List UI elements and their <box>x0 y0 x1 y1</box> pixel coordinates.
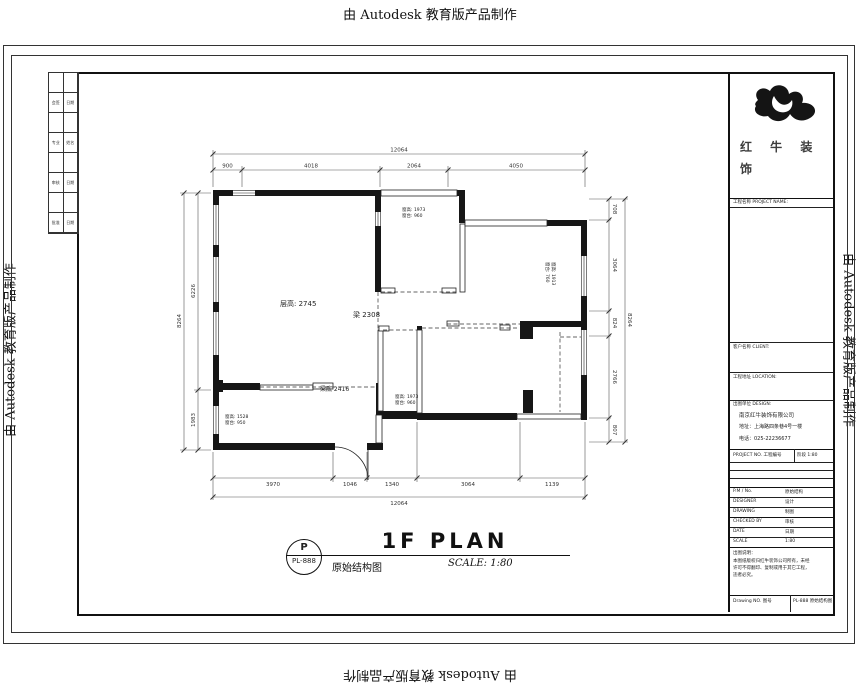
dim-right-seg: 807 <box>611 425 617 436</box>
dim-bottom-total: 12064 <box>390 501 408 507</box>
window-label: 窗高: 1973 <box>395 393 419 400</box>
dim-right-total: 8264 <box>626 313 632 327</box>
tb-row-label: CHECKED BY <box>733 519 762 524</box>
notes-line: 许可不得翻印、复制或用于其它工程， <box>733 565 810 572</box>
dim-right-seg: 3064 <box>611 258 617 272</box>
strip-cell: 姓名 <box>64 133 79 153</box>
strip-cell <box>49 73 64 93</box>
autodesk-banner-top: 由 Autodesk 教育版产品制作 <box>0 4 860 23</box>
strip-cell: 日期 <box>64 173 79 193</box>
tb-row-value: 原始结构 <box>785 489 803 495</box>
project-no-value: 阶段 1:80 <box>797 452 818 458</box>
drawing-title: 1F PLAN <box>340 529 550 553</box>
drawing-subtitle: 原始结构图 <box>332 559 382 574</box>
brand-name-line2: 饰 <box>740 160 759 177</box>
strip-cell: 日期 <box>64 213 79 233</box>
tb-row-label: P.M / No. <box>733 489 752 494</box>
cad-sheet: { "banners": { "top": "由 Autodesk 教育版产品制… <box>0 0 860 688</box>
window-label: 窗台: 760 <box>544 262 551 283</box>
tb-row-label: DESIGNER <box>733 499 756 504</box>
tb-row-label: SCALE <box>733 539 747 544</box>
strip-cell: 日期 <box>64 93 79 113</box>
window-label: 窗高: 1913 <box>550 262 557 286</box>
dim-top-seg: 4050 <box>509 164 523 170</box>
tb-row-value: 1:80 <box>785 539 795 544</box>
window-label: 窗高: 1973 <box>402 206 426 213</box>
strip-cell <box>49 193 64 213</box>
title-underline <box>286 555 570 556</box>
window-label: 窗台: 960 <box>402 212 423 219</box>
company-address: 地址：上海路四条巷4号一楼 <box>739 423 802 430</box>
dim-bottom-seg: 1139 <box>545 482 559 488</box>
project-name-label: 工程名称 PROJECT NAME: <box>733 199 788 205</box>
window-label: 窗台: 960 <box>395 399 416 406</box>
company-phone: 电话：025-22236677 <box>739 435 791 442</box>
strip-cell <box>64 113 79 133</box>
walls <box>213 190 587 450</box>
tb-row-label: DRAWING <box>733 509 755 514</box>
bubble-letter: P <box>287 540 321 555</box>
dim-left-seg: 1983 <box>191 413 197 427</box>
strip-cell: 审核 <box>49 173 64 193</box>
project-no-label: PROJECT NO. 工程编号 <box>733 452 781 458</box>
title-block: 红 牛 装 饰 工程名称 PROJECT NAME: 客户名称 CLIENT: … <box>728 72 833 612</box>
design-unit-label: 出图单位 DESIGN: <box>733 401 771 407</box>
dim-top-seg: 900 <box>222 164 233 170</box>
brand-name-line1: 红 牛 装 <box>740 138 819 155</box>
drawing-no-label: Drawing NO. 图号 <box>733 598 772 604</box>
bull-logo <box>744 82 820 144</box>
dim-right-seg: 2766 <box>611 370 617 384</box>
bubble-number: PL-888 <box>287 555 321 568</box>
strip-cell: 会签 <box>49 93 64 113</box>
autodesk-banner-bottom: 由 Autodesk 教育版产品制作 <box>0 667 860 686</box>
dim-bottom-seg: 1340 <box>385 482 399 488</box>
strip-cell <box>64 153 79 173</box>
tb-row-value: 制图 <box>785 509 794 515</box>
strip-cell: 批准 <box>49 213 64 233</box>
dim-bottom-seg: 1046 <box>343 482 357 488</box>
strip-cell <box>49 113 64 133</box>
window-label: 窗高: 1528 <box>225 413 249 420</box>
floor-plan: 12064 900 4018 2064 4050 3970 1046 1340 … <box>170 140 640 520</box>
window-label: 窗台: 950 <box>225 419 246 426</box>
dim-bottom-seg: 3970 <box>266 482 280 488</box>
location-label: 工程地址 LOCATION: <box>733 374 777 380</box>
notes-line: 本图纸版权归红牛装饰公司所有，未经 <box>733 558 810 565</box>
strip-cell <box>49 153 64 173</box>
dim-top-seg: 4018 <box>304 164 318 170</box>
ceiling-height-label: 层高: 2745 <box>280 299 316 308</box>
drawing-no-value: PL-888 原始结构图 <box>793 598 832 604</box>
plan-annotations: 层高: 2745 梁 2308 梁底 2416 窗高: 1973 窗台: 960… <box>225 206 557 426</box>
strip-cell <box>64 193 79 213</box>
beam-mid-label: 梁 2308 <box>353 310 380 319</box>
notes-title: 出图说明： <box>733 550 756 556</box>
drawing-scale: SCALE: 1:80 <box>448 558 513 569</box>
beam-bottom-label: 梁底 2416 <box>320 385 349 393</box>
dim-left-total: 8264 <box>177 314 183 328</box>
dim-right-seg: 708 <box>611 204 617 215</box>
dim-bottom-seg: 3064 <box>461 482 475 488</box>
tb-row-value: 日期 <box>785 529 794 535</box>
notes-line: 违者必究。 <box>733 572 756 579</box>
strip-cell: 专业 <box>49 133 64 153</box>
tb-row-value: 设计 <box>785 499 794 505</box>
dim-top-seg: 2064 <box>407 164 421 170</box>
drawing-number-bubble: P PL-888 <box>286 539 322 575</box>
tb-row-value: 审核 <box>785 519 794 525</box>
company-name: 南京红牛装饰有限公司 <box>739 411 794 419</box>
strip-cell <box>64 73 79 93</box>
dimension-text: 12064 900 4018 2064 4050 3970 1046 1340 … <box>177 148 632 508</box>
client-label: 客户名称 CLIENT: <box>733 344 769 350</box>
signature-strip: 会签日期 专业姓名 审核日期 批准日期 <box>48 72 79 234</box>
entry-door-swing <box>335 447 368 480</box>
dim-top-total: 12064 <box>390 148 408 154</box>
dim-right-seg: 824 <box>611 318 617 329</box>
tb-row-label: DATE <box>733 529 745 534</box>
dim-left-seg: 6226 <box>191 284 197 298</box>
